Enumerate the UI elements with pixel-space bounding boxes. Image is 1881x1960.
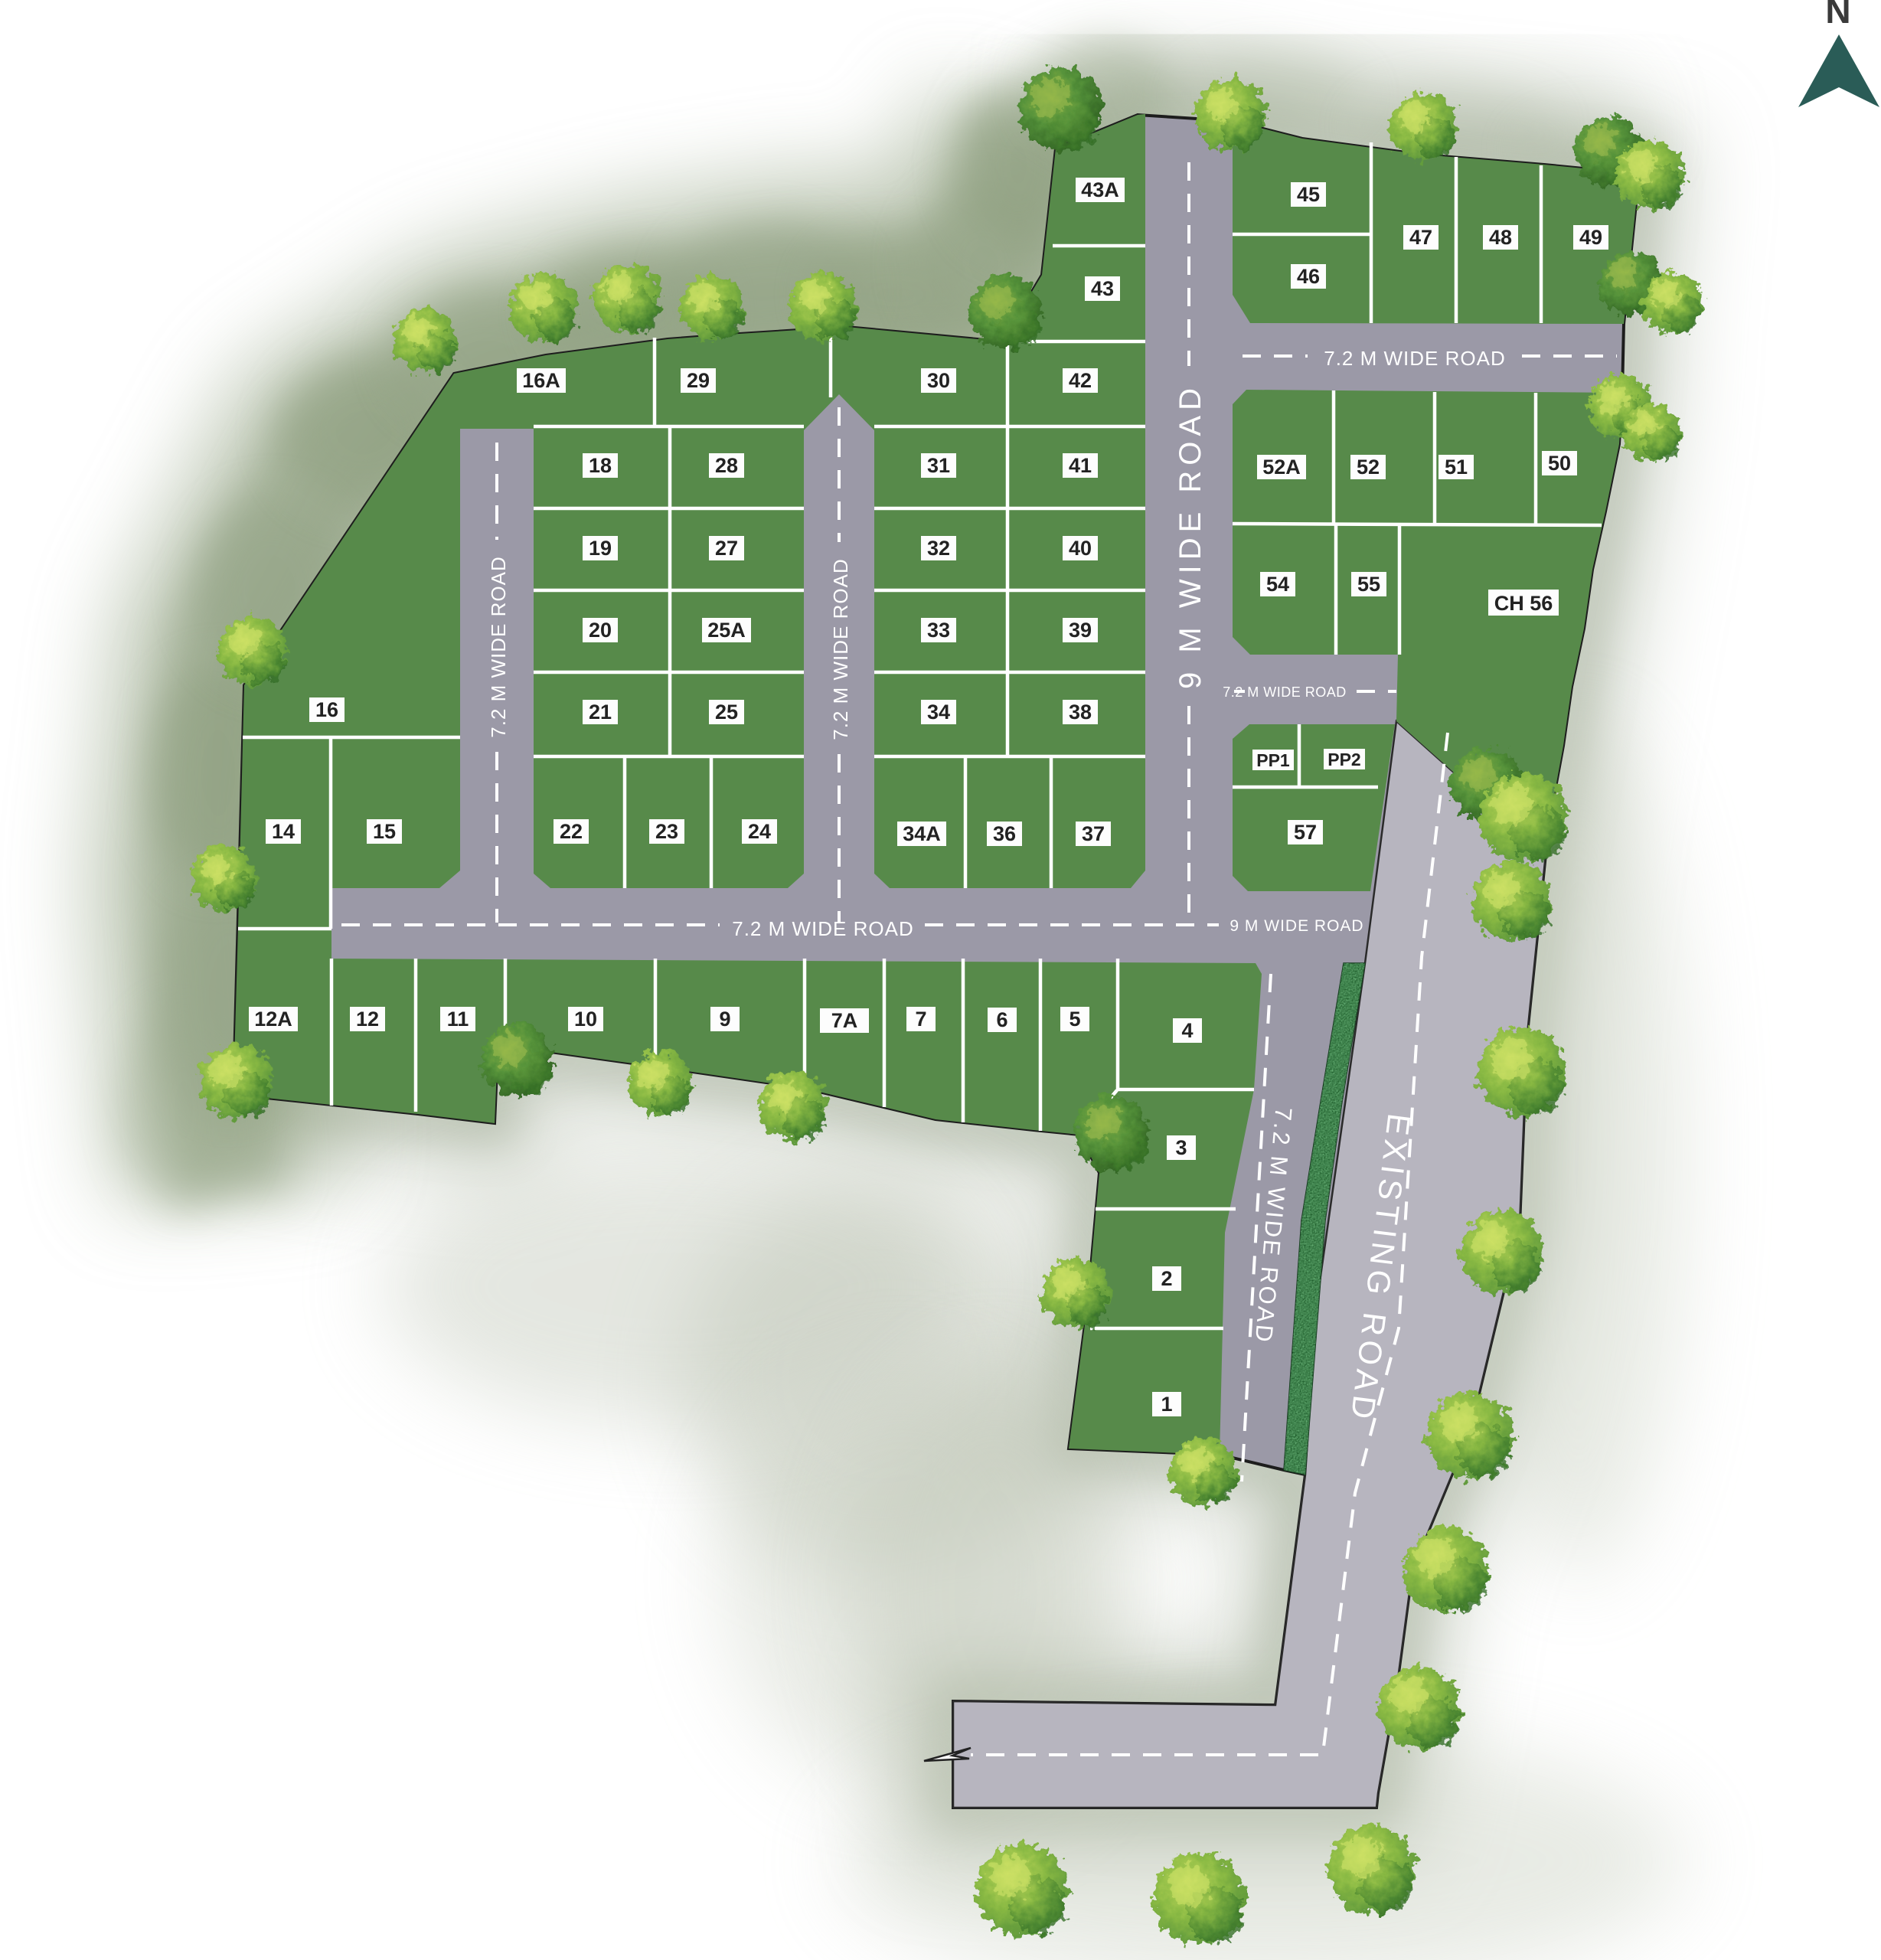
svg-text:PP1: PP1 [1256,750,1290,770]
svg-text:9 M WIDE ROAD: 9 M WIDE ROAD [1230,917,1363,935]
svg-text:1: 1 [1161,1393,1172,1416]
svg-text:15: 15 [373,820,396,843]
svg-text:14: 14 [272,820,295,843]
svg-text:30: 30 [927,369,950,392]
svg-text:43A: 43A [1081,178,1119,201]
svg-text:22: 22 [560,820,583,843]
svg-text:39: 39 [1069,619,1092,642]
svg-text:9 M WIDE ROAD: 9 M WIDE ROAD [1174,383,1207,689]
svg-text:51: 51 [1445,456,1468,479]
svg-text:40: 40 [1069,537,1092,560]
svg-text:48: 48 [1489,226,1512,249]
svg-text:37: 37 [1082,822,1105,845]
svg-text:27: 27 [715,537,738,560]
svg-text:7.2 M WIDE ROAD: 7.2 M WIDE ROAD [1324,347,1505,370]
svg-text:49: 49 [1579,226,1602,249]
svg-text:11: 11 [447,1008,469,1031]
svg-text:20: 20 [589,619,612,642]
svg-text:38: 38 [1069,701,1092,724]
svg-text:4: 4 [1181,1019,1193,1042]
svg-text:16A: 16A [522,369,560,392]
svg-text:7A: 7A [831,1009,858,1032]
svg-text:N: N [1825,0,1850,31]
svg-text:10: 10 [574,1008,597,1031]
svg-text:2: 2 [1161,1267,1172,1290]
svg-text:24: 24 [748,820,771,843]
svg-text:54: 54 [1266,573,1289,596]
svg-text:7.2 M WIDE ROAD: 7.2 M WIDE ROAD [1223,684,1347,700]
svg-text:19: 19 [589,537,612,560]
svg-text:57: 57 [1294,821,1317,844]
svg-text:45: 45 [1297,183,1320,206]
svg-text:36: 36 [993,822,1016,845]
svg-text:18: 18 [589,454,612,477]
svg-text:34: 34 [927,701,950,724]
svg-text:23: 23 [655,820,678,843]
svg-text:3: 3 [1175,1136,1187,1159]
svg-text:9: 9 [719,1008,730,1031]
svg-text:33: 33 [927,619,950,642]
svg-text:52: 52 [1357,456,1380,479]
svg-text:25A: 25A [707,619,746,642]
svg-text:28: 28 [715,454,738,477]
svg-text:12A: 12A [254,1008,292,1031]
svg-text:34A: 34A [903,822,941,845]
svg-text:55: 55 [1357,573,1380,596]
svg-text:41: 41 [1069,454,1092,477]
svg-text:25: 25 [715,701,738,724]
svg-text:7.2 M WIDE ROAD: 7.2 M WIDE ROAD [829,558,852,740]
svg-text:43: 43 [1091,277,1114,300]
svg-text:5: 5 [1069,1008,1080,1031]
svg-text:46: 46 [1297,265,1320,288]
svg-text:PP2: PP2 [1327,750,1360,769]
svg-text:12: 12 [356,1008,379,1031]
svg-text:31: 31 [927,454,950,477]
svg-text:52A: 52A [1262,456,1301,479]
svg-text:7.2 M WIDE ROAD: 7.2 M WIDE ROAD [487,556,510,737]
svg-text:32: 32 [927,537,950,560]
svg-text:21: 21 [589,701,612,724]
svg-text:29: 29 [687,369,710,392]
svg-text:16: 16 [315,698,338,721]
svg-text:CH 56: CH 56 [1494,592,1553,615]
svg-text:42: 42 [1069,369,1092,392]
svg-text:6: 6 [996,1008,1007,1031]
svg-text:7: 7 [915,1008,926,1031]
svg-text:50: 50 [1548,452,1571,475]
svg-text:47: 47 [1409,226,1432,249]
svg-text:7.2 M WIDE ROAD: 7.2 M WIDE ROAD [732,917,913,940]
